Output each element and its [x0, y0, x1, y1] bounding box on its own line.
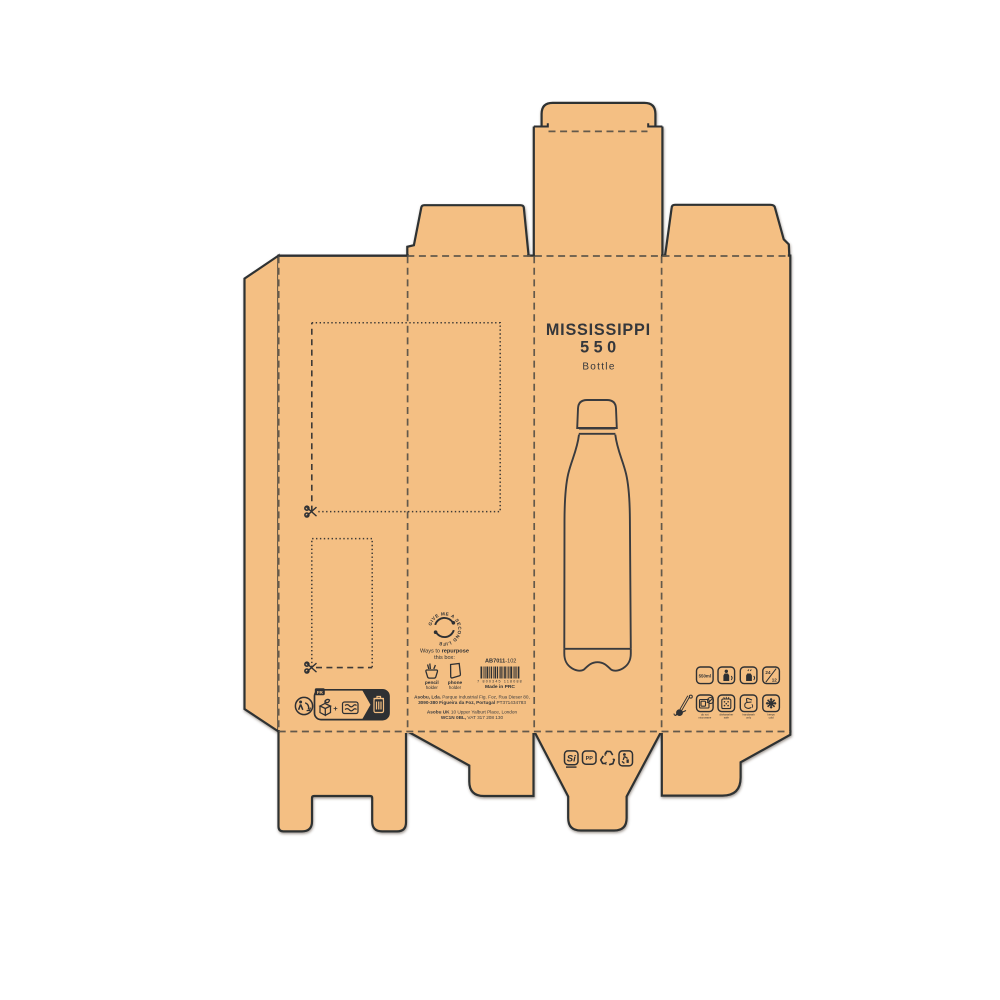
- svg-text:MISSISSIPPI: MISSISSIPPI: [546, 321, 651, 339]
- svg-text:FR: FR: [317, 690, 324, 695]
- svg-text:Bottle: Bottle: [582, 361, 615, 372]
- svg-text:12: 12: [772, 677, 778, 682]
- svg-text:24: 24: [765, 670, 771, 675]
- svg-text:AB7011-102: AB7011-102: [485, 659, 516, 665]
- svg-text:550ml: 550ml: [699, 674, 711, 679]
- svg-text:this box:: this box:: [434, 655, 455, 661]
- svg-text:WC1N 0BL, VAT 317 208 130: WC1N 0BL, VAT 317 208 130: [441, 715, 504, 720]
- svg-text:holder: holder: [449, 685, 462, 690]
- svg-text:Made in PRC: Made in PRC: [485, 684, 515, 690]
- svg-text:microwave: microwave: [698, 716, 711, 720]
- svg-text:Ways to repurpose: Ways to repurpose: [420, 649, 469, 655]
- svg-text:Asobu, Lda. Parque Industrial: Asobu, Lda. Parque Industrial Fig. Foz, …: [414, 695, 530, 700]
- svg-text:7 800345 118088: 7 800345 118088: [477, 679, 523, 683]
- svg-text:Si: Si: [567, 753, 576, 764]
- svg-text:safe: safe: [724, 716, 730, 720]
- svg-text:only: only: [746, 716, 752, 720]
- svg-text:cold: cold: [769, 716, 774, 720]
- svg-text:+: +: [333, 704, 338, 713]
- svg-text:Asobu UK 10 Upper Yalburt Plac: Asobu UK 10 Upper Yalburt Place, London: [427, 710, 518, 715]
- svg-text:PP: PP: [586, 756, 594, 762]
- svg-text:holder: holder: [426, 685, 439, 690]
- svg-text:3090-380 Figueira da Foz, Port: 3090-380 Figueira da Foz, Portugal PT371…: [418, 700, 526, 705]
- svg-text:550: 550: [580, 339, 621, 357]
